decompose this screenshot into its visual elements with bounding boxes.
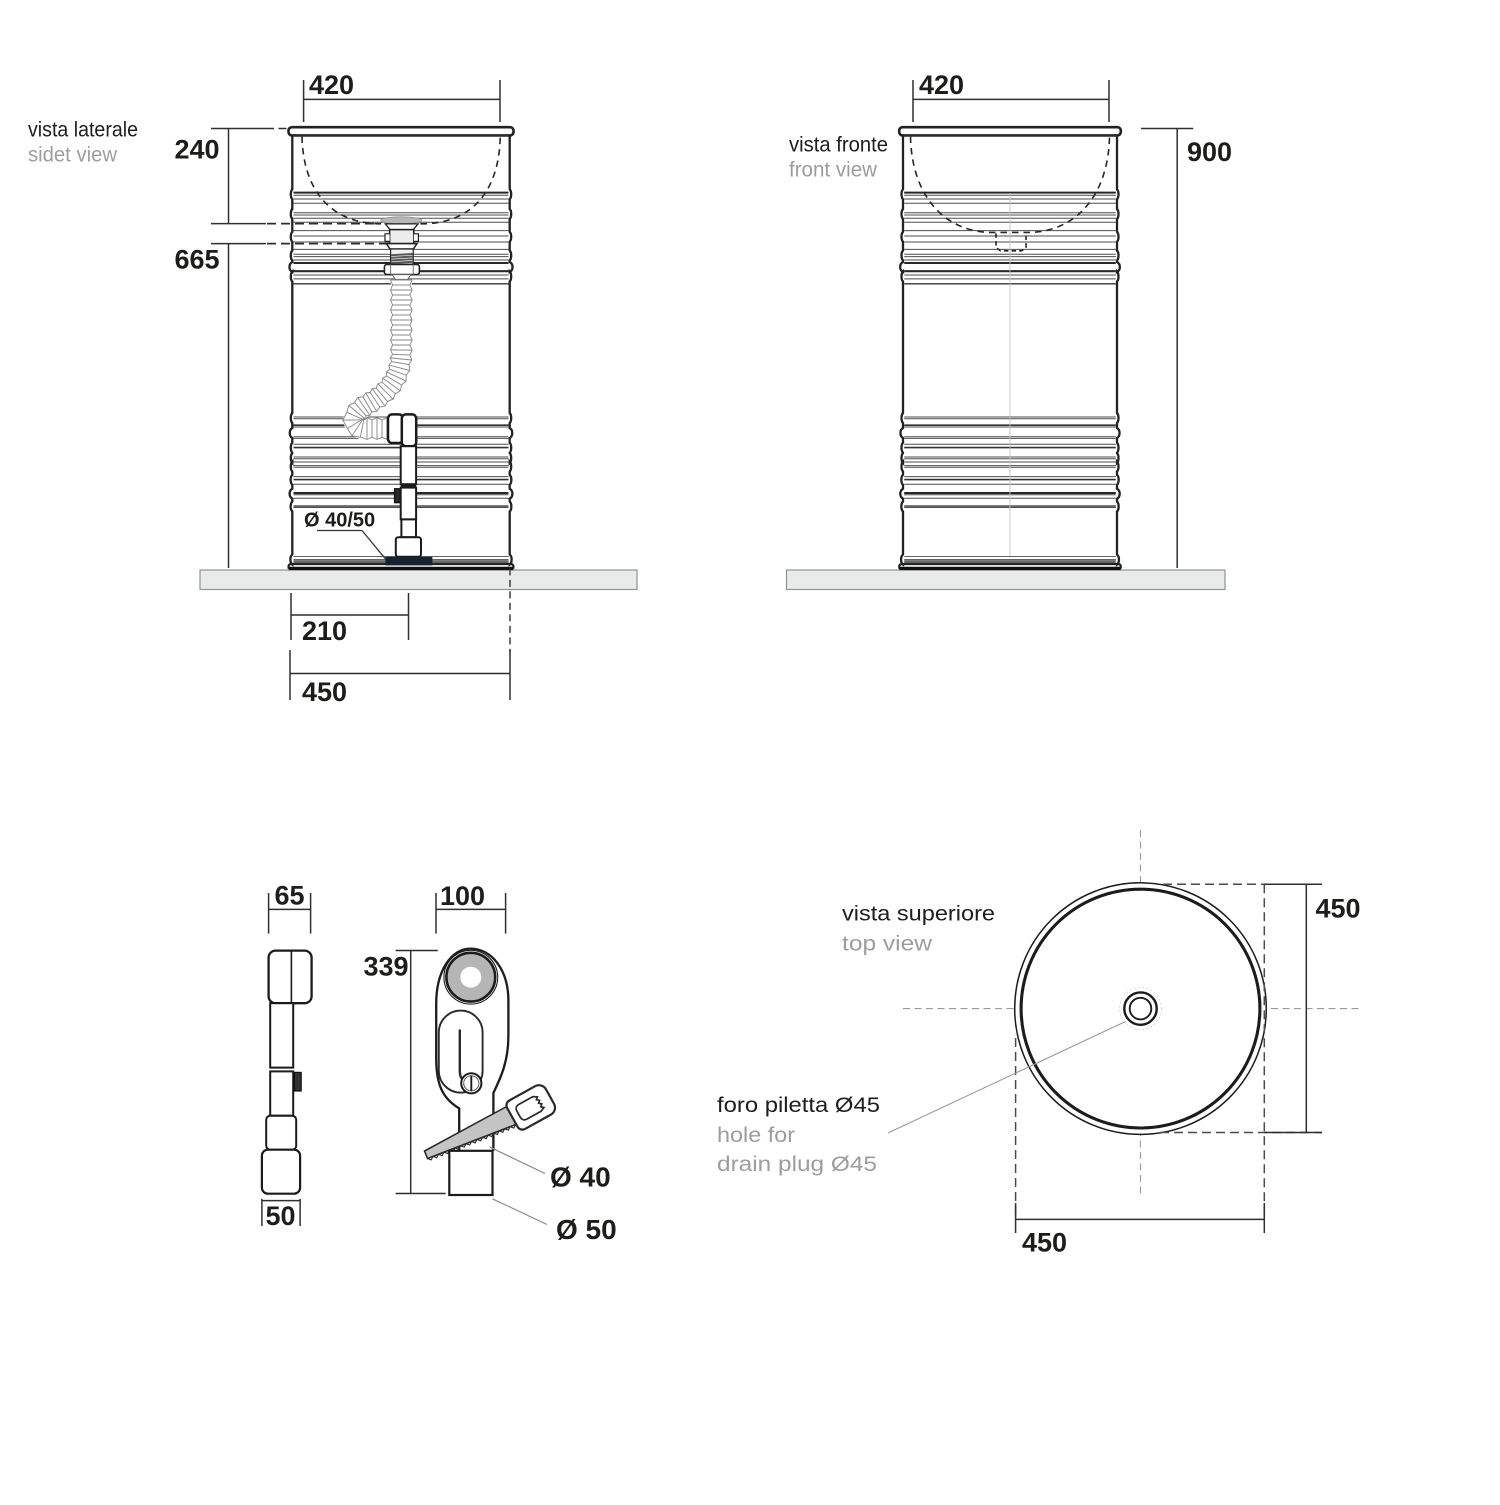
svg-text:vista superiore: vista superiore [842,903,995,926]
svg-text:420: 420 [919,70,964,100]
svg-text:240: 240 [174,135,219,165]
svg-text:420: 420 [309,70,354,100]
svg-text:50: 50 [265,1201,295,1231]
svg-text:vista laterale: vista laterale [28,119,138,142]
svg-text:100: 100 [440,881,485,911]
svg-text:foro piletta Ø45: foro piletta Ø45 [717,1094,880,1117]
svg-text:450: 450 [1316,893,1361,923]
svg-text:top view: top view [842,933,933,956]
svg-text:450: 450 [1022,1228,1067,1258]
svg-text:65: 65 [274,881,304,911]
svg-text:Ø 40: Ø 40 [550,1162,611,1193]
svg-text:front view: front view [789,159,878,182]
svg-text:hole for: hole for [717,1124,795,1147]
svg-text:sidet view: sidet view [28,144,118,167]
svg-text:665: 665 [174,245,219,275]
svg-text:Ø 50: Ø 50 [556,1214,617,1245]
svg-text:900: 900 [1187,137,1232,167]
svg-text:450: 450 [302,677,347,707]
svg-text:Ø 40/50: Ø 40/50 [304,510,375,532]
svg-text:339: 339 [363,952,408,982]
svg-text:vista fronte: vista fronte [789,134,888,157]
svg-text:210: 210 [302,616,347,646]
svg-text:drain plug Ø45: drain plug Ø45 [717,1153,877,1176]
